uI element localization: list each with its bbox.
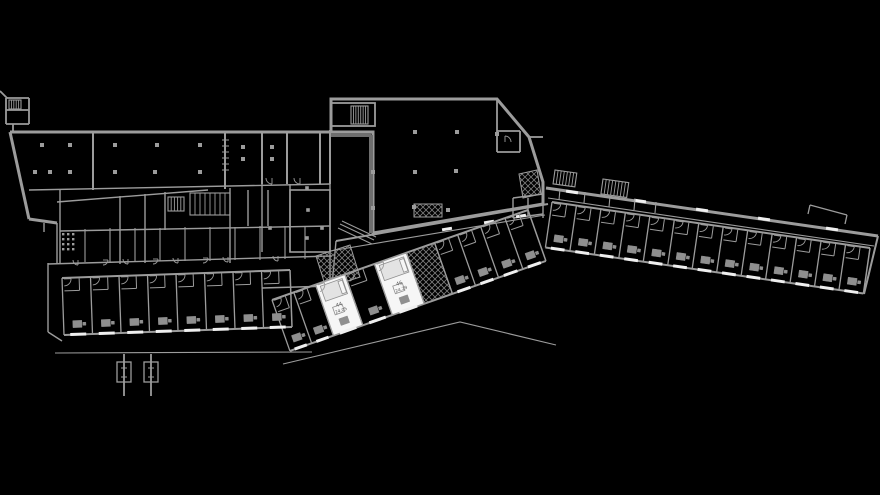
entry-stair <box>9 100 21 109</box>
stair-block-1 <box>553 170 577 187</box>
flagpole-1 <box>117 354 131 396</box>
flagpole-2 <box>144 354 158 396</box>
mid-wing: 4424.054624.29 <box>272 210 546 351</box>
entry-block <box>0 91 29 132</box>
annex-door <box>505 136 511 142</box>
service-bars-1 <box>190 193 230 215</box>
mid-big-room <box>290 190 330 252</box>
south-parapet <box>55 352 312 353</box>
annex-hatch <box>519 170 541 198</box>
hall-stair <box>351 106 368 124</box>
cluster-room-dividers <box>85 226 305 262</box>
hall-hatch <box>414 204 442 217</box>
east-wing <box>545 202 870 294</box>
upper-corridor-inner <box>330 215 545 251</box>
left-band-floor <box>29 184 330 190</box>
hall-inner-dark <box>331 135 371 233</box>
columns-mid-room <box>268 186 324 240</box>
floorplan-viewport: 4424.054624.29 <box>0 0 880 495</box>
canopy-stub <box>808 205 847 224</box>
hall-columns <box>371 130 499 212</box>
shaft-grid <box>62 233 74 250</box>
stair-block-2 <box>601 179 629 197</box>
west-diagonal-wall <box>10 132 57 223</box>
left-band-doors <box>266 178 300 184</box>
floorplan-svg: 4424.054624.29 <box>0 0 880 495</box>
south-wing <box>62 270 292 335</box>
service-bars-2 <box>168 197 184 211</box>
columns-left-band <box>33 143 274 174</box>
